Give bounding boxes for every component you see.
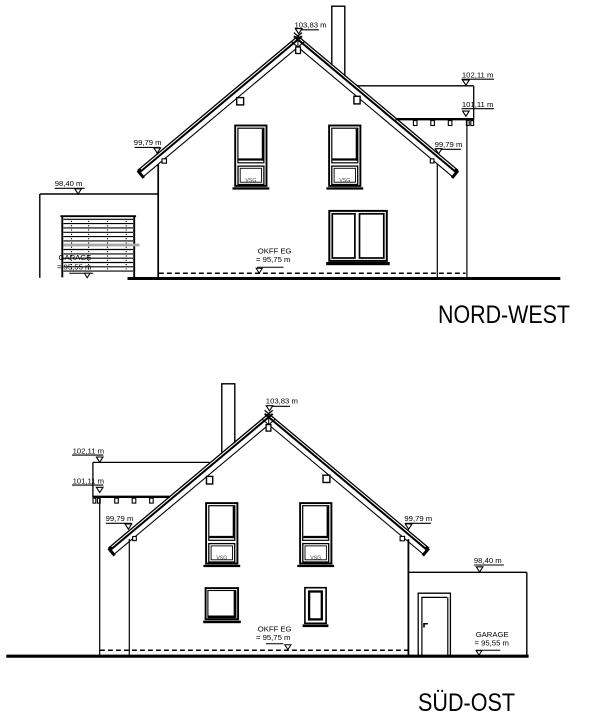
svg-text:VSG: VSG [245, 178, 256, 184]
svg-text:102,11 m: 102,11 m [73, 446, 104, 455]
svg-text:= 95,55 m: = 95,55 m [57, 262, 91, 271]
svg-text:NORD-WEST: NORD-WEST [438, 301, 570, 329]
svg-text:98,40 m: 98,40 m [474, 556, 502, 565]
svg-text:= 95,75 m: = 95,75 m [256, 633, 290, 642]
svg-text:99,79 m: 99,79 m [404, 514, 432, 523]
svg-text:= 95,75 m: = 95,75 m [256, 255, 290, 264]
svg-text:VSG: VSG [310, 555, 321, 561]
svg-text:VSG: VSG [339, 178, 350, 184]
svg-text:99,79 m: 99,79 m [134, 138, 162, 147]
svg-text:SÜD-OST: SÜD-OST [418, 689, 515, 717]
svg-text:103,83 m: 103,83 m [266, 397, 298, 406]
svg-text:= 95,55 m: = 95,55 m [475, 639, 509, 648]
svg-text:101,11 m: 101,11 m [462, 100, 493, 109]
svg-text:99,79 m: 99,79 m [106, 514, 134, 523]
svg-text:GARAGE: GARAGE [59, 253, 92, 262]
svg-text:GARAGE: GARAGE [476, 630, 509, 639]
svg-text:101,11 m: 101,11 m [73, 476, 104, 485]
svg-text:VSG: VSG [216, 555, 227, 561]
svg-text:98,40 m: 98,40 m [55, 179, 83, 188]
svg-text:102,11 m: 102,11 m [462, 70, 493, 79]
svg-text:99,79 m: 99,79 m [435, 140, 463, 149]
